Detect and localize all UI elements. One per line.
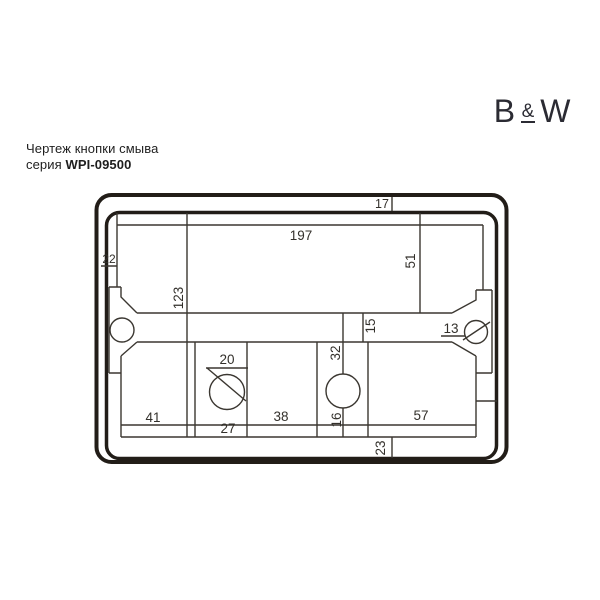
dim-left-offset: 22	[102, 252, 116, 266]
dim-center-hole-offset: 32	[328, 345, 343, 360]
dim-neck-width: 16	[329, 412, 344, 427]
dim-lower-left-width: 41	[145, 410, 160, 425]
dimension-labels: 17 197 22 51 123 15 13 20 32 41 27 38 16…	[102, 197, 458, 456]
dim-lower-right-width: 57	[413, 408, 428, 423]
page: Чертеж кнопки смыва серия WPI-09500 B & …	[0, 0, 600, 600]
button-hole	[210, 375, 245, 410]
dim-opening-width: 197	[290, 228, 313, 243]
dim-right-hole-diameter: 13	[443, 321, 458, 336]
dim-lower-middle-width: 38	[273, 409, 288, 424]
technical-drawing: 17 197 22 51 123 15 13 20 32 41 27 38 16…	[0, 0, 600, 600]
dim-left-section-height: 123	[171, 287, 186, 310]
dim-upper-opening-height: 51	[403, 253, 418, 268]
dim-button-box-width: 27	[220, 421, 235, 436]
dim-frame-top-offset: 17	[375, 197, 389, 211]
opening-outline	[109, 213, 497, 437]
left-screw-hole	[110, 318, 134, 342]
dim-crossbar-height: 15	[363, 318, 378, 333]
dim-button-hole-diameter: 20	[219, 352, 234, 367]
dim-frame-bottom-offset: 23	[373, 440, 388, 455]
inner-frame	[107, 213, 497, 459]
center-hole	[326, 374, 360, 408]
